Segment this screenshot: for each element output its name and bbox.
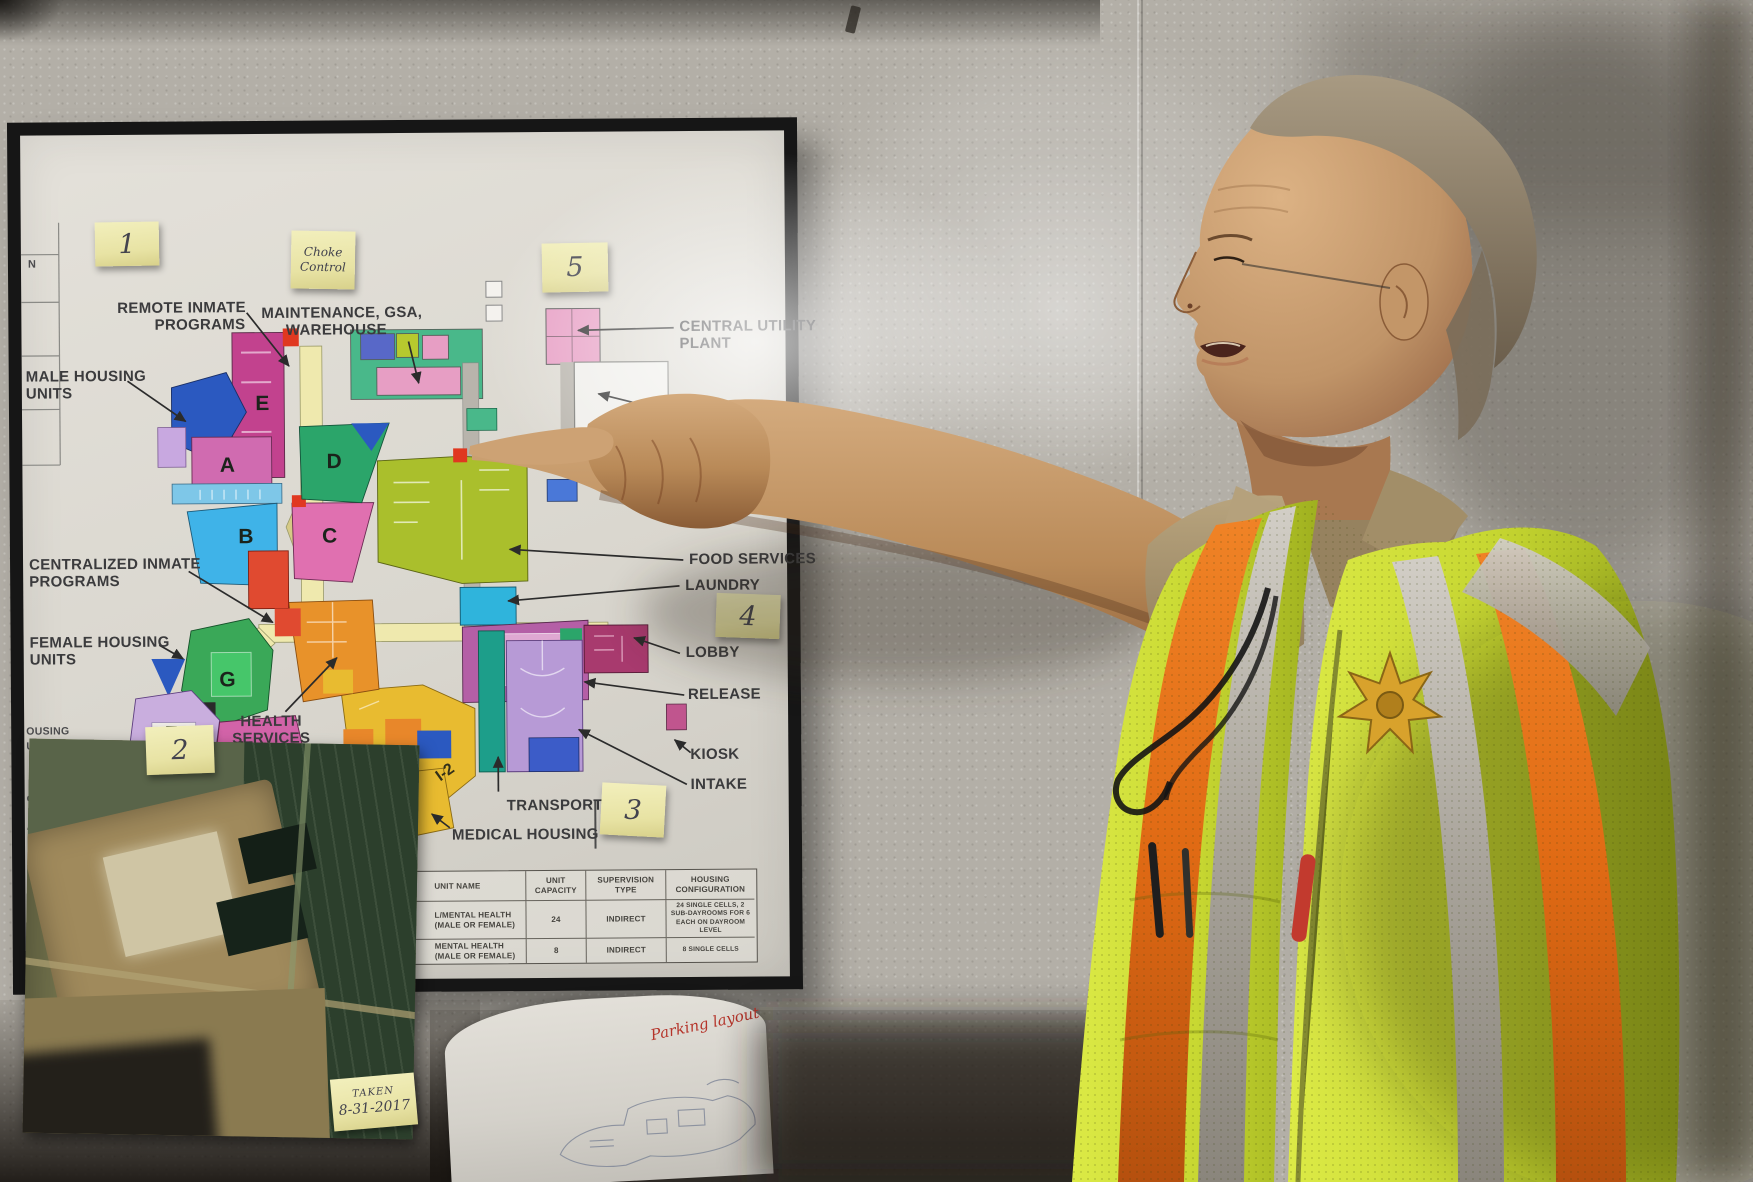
shirt-sleeve: [1145, 495, 1304, 669]
pen: [1182, 848, 1194, 938]
label-transport: TRANSPORT: [507, 798, 603, 815]
letter-e: E: [255, 392, 269, 415]
collar-right: [1362, 470, 1468, 574]
sticky-note-5: 5: [542, 242, 609, 292]
badge-star-icon: [1339, 653, 1440, 752]
nose: [1174, 252, 1200, 312]
label-kiosk: KIOSK: [690, 747, 739, 764]
reflective-stripe-silver: [1198, 506, 1296, 1182]
sticky-note-2: 2: [145, 725, 215, 775]
office-photo-scene: N: [0, 0, 1753, 1182]
label-release: RELEASE: [688, 687, 761, 704]
label-medical-housing: MEDICAL HOUSING: [452, 827, 599, 845]
left-edge-letter: N: [28, 259, 36, 271]
face-features: [1174, 186, 1390, 467]
wing-d: [299, 423, 389, 503]
sticky-note-photo-date: TAKEN 8-31-2017: [330, 1072, 418, 1131]
safety-vest: [1070, 500, 1753, 1182]
face: [1177, 96, 1473, 437]
service-yard-block: [560, 362, 668, 474]
intake-block: [506, 640, 583, 772]
col-header-supervision-type: SUPERVISIONTYPE: [586, 870, 666, 901]
eye: [1214, 258, 1244, 262]
parking-layout-sketch-paper: Parking layout: [442, 990, 773, 1182]
letter-g: G: [219, 668, 235, 691]
sticky-note-4: 4: [715, 593, 780, 639]
mouth: [1200, 342, 1246, 358]
label-female-housing-units: FEMALE HOUSING UNITS: [30, 635, 170, 669]
release-block: [584, 625, 648, 673]
label-service-yard: SERVICE YARD: [682, 402, 796, 419]
table-row-cell: 8 SINGLE CELLS: [667, 938, 755, 963]
vest-stripe-orange: [1118, 518, 1262, 1182]
table-row-cell: 24: [526, 901, 586, 939]
unit-capacity-table: UNIT NAME UNITCAPACITY SUPERVISIONTYPE H…: [379, 869, 758, 966]
transport-block: [478, 631, 505, 772]
letter-b: B: [238, 525, 253, 548]
collar-left: [1218, 486, 1312, 584]
sticky-note-control: Choke Control: [290, 230, 355, 289]
table-row-cell: 8: [527, 939, 587, 963]
reflective-stripe-silver: [1392, 556, 1504, 1182]
vest-stripe-orange: [1476, 548, 1626, 1182]
col-header-housing-configuration: HOUSINGCONFIGURATION: [666, 870, 754, 901]
col-header-unit-capacity: UNITCAPACITY: [526, 871, 586, 901]
letter-a: A: [220, 454, 235, 477]
hair: [1250, 75, 1537, 368]
label-food-services: FOOD SERVICES: [689, 551, 816, 568]
glasses-temple: [1242, 264, 1390, 288]
pen: [1148, 842, 1164, 938]
label-centralized-inmate-programs: CENTRALIZED INMATE PROGRAMS: [29, 556, 201, 590]
vest-mesh-texture: [1070, 500, 1682, 1182]
letter-c: C: [322, 525, 337, 548]
vest-zipper: [1298, 630, 1340, 1182]
hanging-glasses: [1116, 588, 1276, 812]
ear: [1380, 264, 1428, 340]
letter-d: D: [326, 450, 341, 473]
label-intake: INTAKE: [691, 777, 748, 794]
corner-shadow: [0, 0, 64, 42]
label-central-utility-plant: CENTRAL UTILITY PLANT: [679, 318, 816, 352]
shoulder-reflective-patch: [1462, 538, 1650, 716]
head: [1174, 75, 1536, 541]
label-laundry: LAUNDRY: [685, 578, 760, 595]
site-plan-sketch: [526, 1054, 772, 1182]
red-pen: [1291, 853, 1317, 942]
red-handwriting-note: Parking layout: [649, 1004, 761, 1045]
label-remote-inmate-programs: REMOTE INMATE PROGRAMS: [117, 300, 245, 334]
shirt-chest: [1300, 520, 1462, 648]
top-shadow: [0, 0, 1100, 46]
wall-shading: [640, 0, 1753, 1182]
laundry-block: [460, 587, 516, 625]
table-row-cell: INDIRECT: [586, 900, 666, 939]
flash-glare: [880, 140, 1240, 480]
left-edge-partial-table: [21, 223, 61, 466]
sticky-note-1: 1: [95, 221, 160, 266]
sticky-note-3: 3: [600, 782, 667, 837]
kiosk-block: [666, 704, 686, 730]
central-utility-plant-block: [546, 308, 600, 364]
neck: [1232, 408, 1391, 541]
pocket-pens: [1148, 842, 1316, 943]
label-lobby: LOBBY: [686, 645, 740, 662]
eyebrow: [1208, 236, 1252, 241]
table-row-cell: 24 SINGLE CELLS, 2 SUB-DAYROOMS FOR 6 EA…: [666, 900, 754, 939]
label-partial-right: VICES: [748, 472, 789, 487]
label-male-housing-units: MALE HOUSING UNITS: [26, 369, 147, 403]
table-row-cell: INDIRECT: [587, 938, 667, 963]
left-fragment-1: OUSING: [26, 725, 69, 737]
label-maintenance-gsa-warehouse: MAINTENANCE, GSA, WAREHOUSE: [261, 305, 411, 339]
